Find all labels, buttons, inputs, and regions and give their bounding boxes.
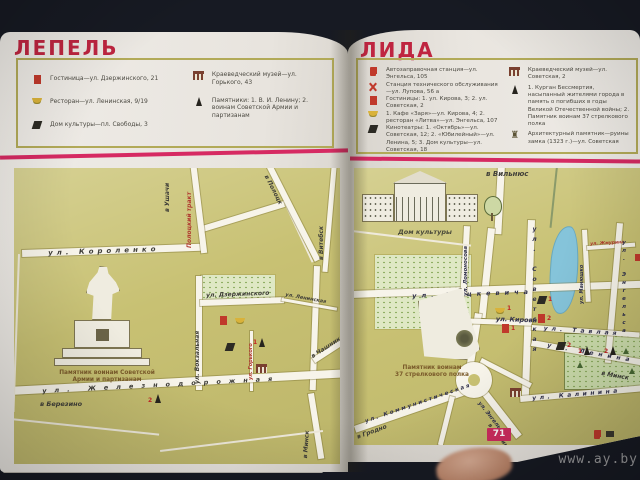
fuel-station-icon <box>594 430 600 439</box>
pedestal-plaque <box>96 329 109 341</box>
legend-item: Гостиница—ул. Дзержинского, 21 <box>30 75 182 86</box>
legend-column: Автозаправочная станция—ул. Энгельса, 10… <box>366 67 498 146</box>
statue-base <box>54 358 150 366</box>
caption-line: Памятник воинам Советской <box>42 370 172 377</box>
legend-item: 1. Курган Бессмертия, насыпанный жителям… <box>508 85 630 129</box>
legend-box-lepel: Гостиница—ул. Дзержинского, 21 Ресторан—… <box>16 58 334 148</box>
building-caption: Дом культуры <box>398 228 452 236</box>
hotel-icon <box>30 75 44 86</box>
road <box>14 418 159 436</box>
hotel-icon <box>538 314 545 323</box>
cinema-number: 2 <box>567 343 571 349</box>
cafe-number: 1 <box>507 306 511 312</box>
museum-icon <box>192 71 206 82</box>
pediment <box>393 171 447 183</box>
legend-text: Гостиницы: 1. ул. Кирова, 3; 2. ул. Сове… <box>386 96 498 111</box>
hotel-icon <box>366 96 380 107</box>
hotel-number: 2 <box>547 316 551 322</box>
museum-icon <box>508 67 522 78</box>
legend-text: Кинотеатры: 1. «Октябрь»—ул. Советская, … <box>386 125 498 154</box>
right-page: ЛИДА Автозаправочная станция—ул. Энгельс… <box>348 30 640 462</box>
direction-label: в Березино <box>40 400 82 408</box>
restaurant-icon <box>366 111 380 122</box>
legend-text: 1. Кафе «Заря»—ул. Кирова, 4; 2. рестора… <box>386 111 498 126</box>
legend-text: Станция технического обслуживания—ул. Лу… <box>386 82 498 97</box>
monument-number: 1 <box>253 340 257 346</box>
legend-text: Краеведческий музей—ул. Горького, 43 <box>212 71 324 87</box>
monument-icon <box>259 338 265 347</box>
car-service-icon <box>366 82 380 93</box>
hotel-icon <box>220 316 227 325</box>
caption-line: 37 стрелкового полка <box>384 372 480 379</box>
legend-item: Станция технического обслуживания—ул. Лу… <box>366 82 498 97</box>
legend-item: Краеведческий музей—ул. Советская, 2 <box>508 67 630 82</box>
monument-icon <box>584 346 590 355</box>
monument-caption: Памятник воинам 37 стрелкового полка <box>384 365 480 379</box>
direction-label: в Минск <box>302 430 312 458</box>
stream <box>550 168 558 228</box>
museum-icon <box>510 388 521 397</box>
legend-column: Краеведческий музей—ул. Горького, 43 Пам… <box>192 69 324 138</box>
legend-text: Гостиница—ул. Дзержинского, 21 <box>50 75 158 83</box>
legend-item: Гостиницы: 1. ул. Кирова, 3; 2. ул. Сове… <box>366 96 498 111</box>
legend-text: Дом культуры—пл. Свободы, 3 <box>50 121 148 129</box>
legend-text: Архитектурный памятник—руины замка (1323… <box>528 131 630 146</box>
culture-house-icon <box>30 121 44 132</box>
restaurant-icon <box>30 98 44 109</box>
hotel-icon <box>502 324 509 333</box>
tree-icon <box>577 362 583 368</box>
legend-item: Кинотеатры: 1. «Октябрь»—ул. Советская, … <box>366 125 498 154</box>
culture-house-drawing <box>394 182 446 222</box>
lida-map: Дом культуры Памятник воинам 37 стрелков… <box>354 168 640 445</box>
left-page: ЛЕПЕЛЬ Гостиница—ул. Дзержинского, 21 Ре… <box>0 32 348 472</box>
legend-column: Краеведческий музей—ул. Советская, 2 1. … <box>508 67 630 146</box>
street-label: Полоцкий тракт <box>186 192 194 248</box>
legend-item: Памятники: 1. В. И. Ленину; 2. воинам Со… <box>192 97 324 120</box>
cinema-icon <box>537 296 548 304</box>
street-label: ул. Советская <box>530 226 538 356</box>
statue-pedestal <box>74 320 130 348</box>
culture-house-icon <box>225 343 236 351</box>
soldier-statue-drawing <box>86 266 120 320</box>
legend-item: Архитектурный памятник—руины замка (1323… <box>508 131 630 146</box>
statue-base <box>62 348 142 358</box>
divider-stripe <box>350 156 640 163</box>
monument-icon <box>610 346 616 355</box>
legend-item: Дом культуры—пл. Свободы, 3 <box>30 121 182 132</box>
street-label: в Ушачи <box>164 183 172 212</box>
street-label: ул. Манюшко <box>578 265 586 304</box>
building-wing <box>362 194 394 222</box>
cinema-number: 1 <box>548 297 552 303</box>
monument-icon <box>508 85 522 96</box>
tree-icon <box>623 348 629 354</box>
legend-box-lida: Автозаправочная станция—ул. Энгельса, 10… <box>356 58 638 154</box>
monument-icon <box>192 97 206 108</box>
legend-item: Ресторан—ул. Ленинская, 9/19 <box>30 98 182 109</box>
monument-number: 2 <box>148 398 152 404</box>
castle-icon <box>508 131 522 142</box>
street-label: ул. Энгельса <box>620 240 628 336</box>
divider-stripe <box>0 148 348 159</box>
tree-icon <box>629 368 635 374</box>
caption-line: Памятник воинам <box>384 365 480 372</box>
street-label: ул. Горького <box>247 343 255 380</box>
legend-item: 1. Кафе «Заря»—ул. Кирова, 4; 2. рестора… <box>366 111 498 126</box>
legend-text: Краеведческий музей—ул. Советская, 2 <box>528 67 630 82</box>
building-wing <box>446 194 478 222</box>
street-label: в Витебск <box>318 226 326 260</box>
cinema-icon <box>366 125 380 136</box>
street-label: ул. Вокзальная <box>194 331 202 384</box>
page-number: 71 <box>487 428 511 441</box>
legend-item: Автозаправочная станция—ул. Энгельса, 10… <box>366 67 498 82</box>
direction-label: в Вильнюс <box>486 170 528 178</box>
fuel-station-icon <box>366 67 380 78</box>
monument-number: 1 <box>578 349 582 355</box>
street-label: ул. Ломоносова <box>462 246 470 296</box>
legend-text: Памятники: 1. В. И. Ленину; 2. воинам Со… <box>212 97 324 120</box>
legend-text: 1. Курган Бессмертия, насыпанный жителям… <box>528 85 630 129</box>
legend-text: Ресторан—ул. Ленинская, 9/19 <box>50 98 148 106</box>
restaurant-icon <box>495 308 505 313</box>
museum-icon <box>256 364 267 373</box>
columns <box>396 197 444 221</box>
street-label: ул. Коммунистическая <box>364 381 473 425</box>
monument-icon <box>155 394 161 403</box>
lepel-map: Памятник воинам Советской Армии и партиз… <box>14 168 340 464</box>
legend-text: Автозаправочная станция—ул. Энгельса, 10… <box>386 67 498 82</box>
road <box>160 430 323 452</box>
legend-column: Гостиница—ул. Дзержинского, 21 Ресторан—… <box>30 69 182 138</box>
legend-item: Краеведческий музей—ул. Горького, 43 <box>192 71 324 87</box>
watermark: www.ay.by <box>546 452 638 467</box>
page-title-lepel: ЛЕПЕЛЬ <box>14 36 119 60</box>
hotel-number: 1 <box>511 326 515 332</box>
tree-icon <box>484 196 502 216</box>
road <box>479 228 495 318</box>
monument-number: 2 <box>604 349 608 355</box>
hotel-icon <box>635 254 640 261</box>
road <box>202 201 285 232</box>
restaurant-icon <box>235 318 245 323</box>
street-label: ул. Короленко <box>48 245 160 257</box>
service-building-icon <box>606 431 614 437</box>
monument-shrubs <box>456 330 473 347</box>
